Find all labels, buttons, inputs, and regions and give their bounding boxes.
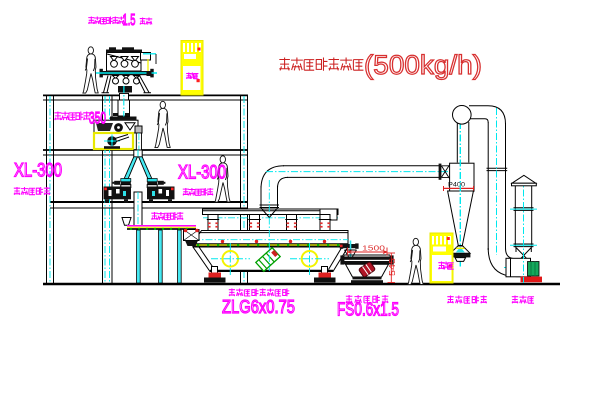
svg-text:1.5: 1.5 — [123, 12, 136, 29]
svg-text:FS0.6x1.5: FS0.6x1.5 — [337, 299, 399, 320]
svg-text:P400: P400 — [448, 182, 465, 189]
svg-text:(500kg/h): (500kg/h) — [364, 50, 482, 80]
svg-text:545: 545 — [388, 257, 397, 276]
svg-text:350: 350 — [89, 109, 106, 128]
svg-text:ZLG6x0.75: ZLG6x0.75 — [222, 296, 295, 317]
svg-text:1500: 1500 — [362, 243, 385, 252]
svg-text:XL-300: XL-300 — [14, 161, 62, 182]
svg-text:XL-300: XL-300 — [178, 163, 226, 184]
